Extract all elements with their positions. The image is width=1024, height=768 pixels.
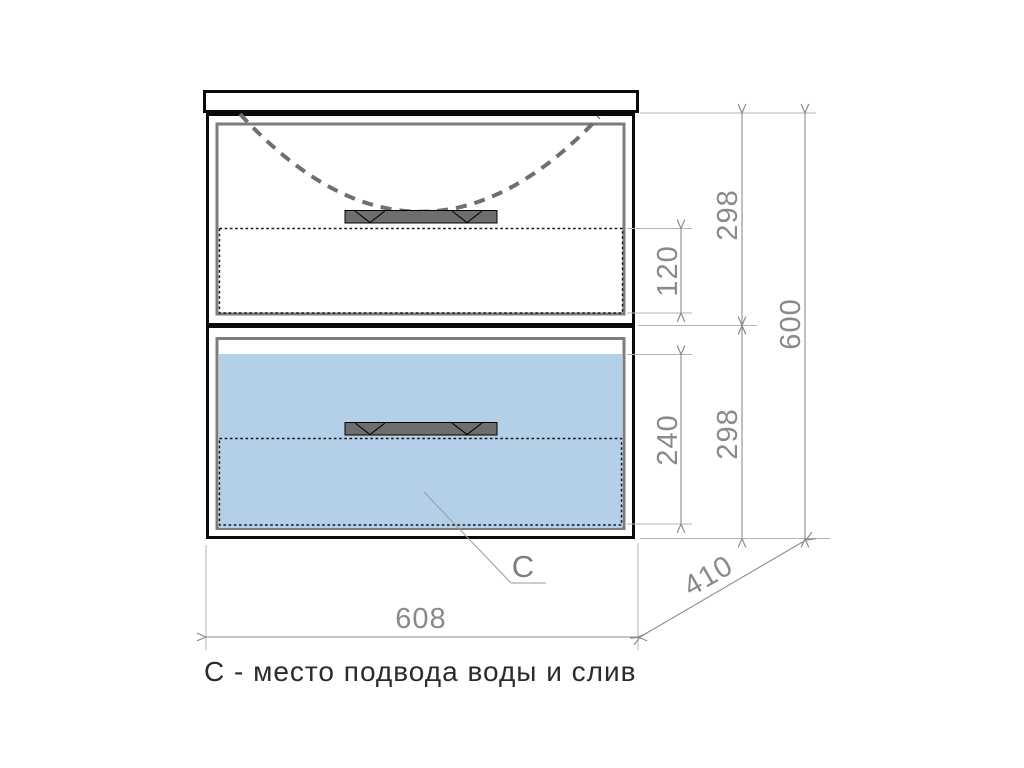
bottom-drawer <box>208 327 634 538</box>
dim-label: 120 <box>652 245 684 296</box>
cabinet-front-view <box>205 92 638 538</box>
top-drawer-handle <box>345 211 497 224</box>
countertop <box>205 92 638 112</box>
dim-top-drawer-inner: 120 <box>652 229 684 314</box>
bottom-drawer-handle <box>345 423 497 436</box>
dim-label: 600 <box>775 298 807 349</box>
dim-label: 298 <box>712 189 744 240</box>
dim-bottom-drawer-height: 298 <box>712 326 744 539</box>
caption: С - место подвода воды и слив <box>204 656 636 687</box>
top-drawer <box>208 114 634 325</box>
vanity-cabinet-drawing: 120 298 240 298 600 608 410 C <box>0 0 1024 768</box>
dim-total-height: 600 <box>775 113 807 539</box>
dim-label: 298 <box>712 408 744 459</box>
dim-label: 410 <box>678 550 739 603</box>
technical-drawing-page: 120 298 240 298 600 608 410 C <box>0 0 1024 768</box>
dim-width: 608 <box>206 603 638 637</box>
dim-label: 240 <box>652 414 684 465</box>
water-supply-zone <box>219 354 622 528</box>
c-label: C <box>512 549 534 584</box>
dim-bottom-drawer-inner: 240 <box>652 355 684 525</box>
dim-label: 608 <box>395 603 446 635</box>
dim-depth: 410 <box>640 540 806 637</box>
dim-top-drawer-height: 298 <box>712 113 744 326</box>
